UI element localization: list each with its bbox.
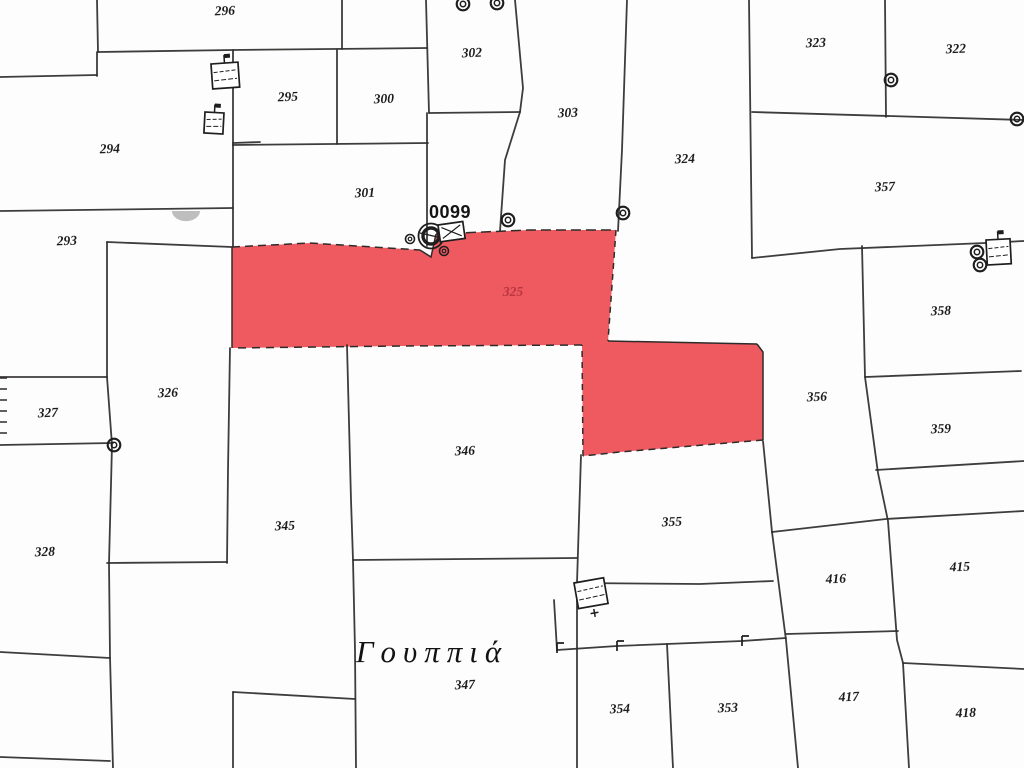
parcel-label-300: 300 [372, 91, 394, 107]
boundary-line [885, 0, 886, 117]
parcel-label-359: 359 [929, 421, 951, 437]
parcel-label-346: 346 [453, 443, 475, 459]
parcel-label-416: 416 [824, 571, 846, 587]
boundary-line [429, 112, 520, 113]
parcel-label-327: 327 [36, 405, 59, 421]
boundary-line [107, 562, 227, 563]
parcel-label-302: 302 [460, 45, 482, 61]
parcel-label-418: 418 [954, 705, 976, 721]
parcel-label-356: 356 [805, 389, 827, 405]
parcel-label-293: 293 [55, 233, 77, 249]
boundary-line [233, 142, 260, 143]
parcel-label-355: 355 [660, 514, 682, 530]
parcel-label-328: 328 [33, 544, 55, 560]
parcel-label-301: 301 [353, 185, 375, 201]
area-name-label: Γουππιά [355, 634, 508, 669]
parcel-label-324: 324 [673, 151, 695, 167]
parcel-label-354: 354 [608, 701, 630, 717]
parcel-label-353: 353 [716, 700, 738, 716]
building-icon [438, 222, 465, 242]
cadastral-map-canvas: 2962942932953003023033013243233223573583… [0, 0, 1024, 768]
parcel-label-322: 322 [944, 41, 966, 57]
boundary-line [97, 0, 98, 52]
parcel-label-296: 296 [213, 3, 235, 19]
parcel-label-294: 294 [98, 141, 120, 157]
parcel-label-295: 295 [276, 89, 298, 105]
reference-label: 0099 [429, 202, 471, 222]
parcel-label-323: 323 [804, 35, 826, 51]
parcel-label-345: 345 [273, 518, 295, 534]
parcel-label-358: 358 [929, 303, 951, 319]
cadastral-map-view: 2962942932953003023033013243233223573583… [0, 0, 1024, 768]
parcel-label-347: 347 [453, 677, 476, 693]
parcel-label-357: 357 [873, 179, 896, 195]
parcel-label-326: 326 [156, 385, 178, 401]
highlighted-parcel-label: 325 [502, 284, 524, 299]
parcel-label-303: 303 [556, 105, 578, 121]
parcel-label-415: 415 [948, 559, 970, 575]
parcel-label-417: 417 [837, 689, 860, 705]
